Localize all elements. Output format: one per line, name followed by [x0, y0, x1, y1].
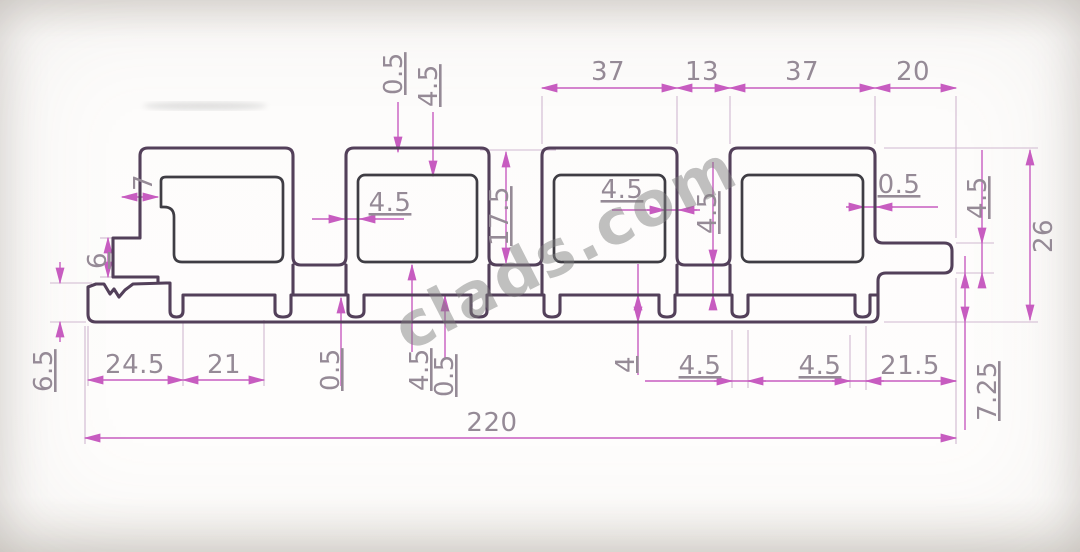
dim-label-box2-45: 4.5 [369, 188, 412, 218]
dim-label-21: 21 [207, 350, 241, 380]
dim-label-37-left: 37 [591, 57, 625, 87]
dim-label-45c: 4.5 [679, 351, 722, 381]
dim-label-220: 220 [466, 408, 517, 438]
chamber-4 [742, 175, 863, 262]
dim-label-245: 24.5 [105, 350, 165, 380]
dim-label-box4-05: 0.5 [878, 170, 921, 200]
dim-label-topwall-45: 4.5 [414, 64, 444, 107]
photo-smudge [143, 102, 267, 110]
watermark-text: clads.com [382, 130, 750, 366]
dim-label-725: 7.25 [973, 361, 1003, 421]
dim-label-tongue-45: 4.5 [963, 176, 993, 219]
dim-label-65: 6.5 [29, 349, 59, 392]
dim-label-4: 4 [611, 356, 641, 373]
dim-label-skin-05: 0.5 [379, 52, 409, 95]
dim-label-215: 21.5 [880, 351, 940, 381]
dim-label-7: 7 [129, 174, 159, 191]
dim-label-37-right: 37 [785, 57, 819, 87]
dim-label-6: 6 [83, 252, 113, 269]
dim-label-45d: 4.5 [799, 351, 842, 381]
profile-technical-drawing: 37 13 37 20 0.5 4.5 17.5 4.5 4.5 4.5 0.5… [0, 0, 1080, 552]
dim-label-20: 20 [896, 57, 930, 87]
dim-label-26: 26 [1029, 219, 1059, 253]
dim-label-05b: 0.5 [430, 354, 460, 397]
dim-label-13: 13 [685, 57, 719, 87]
screenshot-root: 37 13 37 20 0.5 4.5 17.5 4.5 4.5 4.5 0.5… [0, 0, 1080, 552]
dim-label-05a: 0.5 [316, 348, 346, 391]
chamber-1 [161, 177, 283, 262]
